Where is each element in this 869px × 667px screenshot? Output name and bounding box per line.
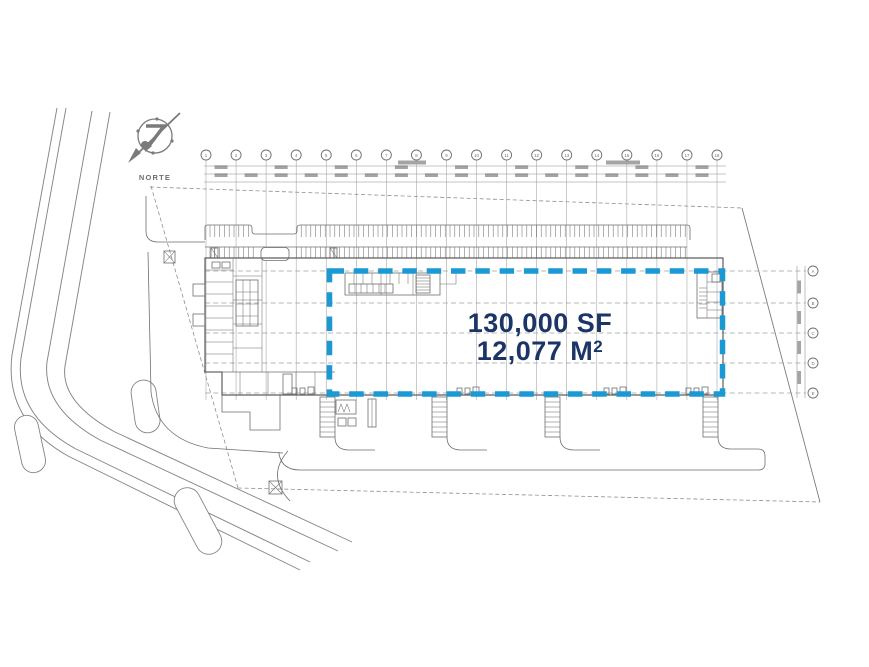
svg-text:D: D (811, 361, 814, 366)
svg-text:E: E (812, 391, 815, 396)
compass: NORTE (128, 113, 180, 182)
office-top (345, 273, 456, 295)
svg-text:14: 14 (594, 153, 599, 158)
svg-text:10: 10 (474, 153, 479, 158)
dimension-band-right (797, 266, 805, 398)
svg-text:13: 13 (564, 153, 569, 158)
building-outline (205, 258, 723, 430)
office-right (697, 272, 722, 318)
median-island (129, 378, 161, 434)
highlight-area: 130,000 SF 12,077 M2 (330, 271, 723, 394)
svg-text:B: B (812, 301, 815, 306)
truck-court (269, 437, 765, 501)
svg-text:C: C (811, 331, 814, 336)
svg-text:11: 11 (504, 153, 509, 158)
svg-text:16: 16 (655, 153, 660, 158)
dimension-band-top (204, 161, 726, 183)
svg-text:18: 18 (715, 153, 720, 158)
streets (11, 108, 352, 570)
median-island (12, 413, 48, 475)
site-plan-drawing: NORTE 123456789101112131415161718 ABCDE (0, 0, 869, 667)
svg-text:A: A (812, 269, 815, 274)
site-plan-page: NORTE 123456789101112131415161718 ABCDE (0, 0, 869, 667)
column-grid: 123456789101112131415161718 (201, 150, 722, 400)
office-left (164, 251, 315, 395)
area-label-sf: 130,000 SF (468, 308, 613, 338)
svg-text:17: 17 (685, 153, 690, 158)
north-label: NORTE (139, 173, 171, 182)
area-label-m2: 12,077 M2 (477, 336, 604, 366)
svg-text:15: 15 (624, 153, 629, 158)
svg-text:12: 12 (534, 153, 539, 158)
parking-strip (205, 225, 690, 261)
